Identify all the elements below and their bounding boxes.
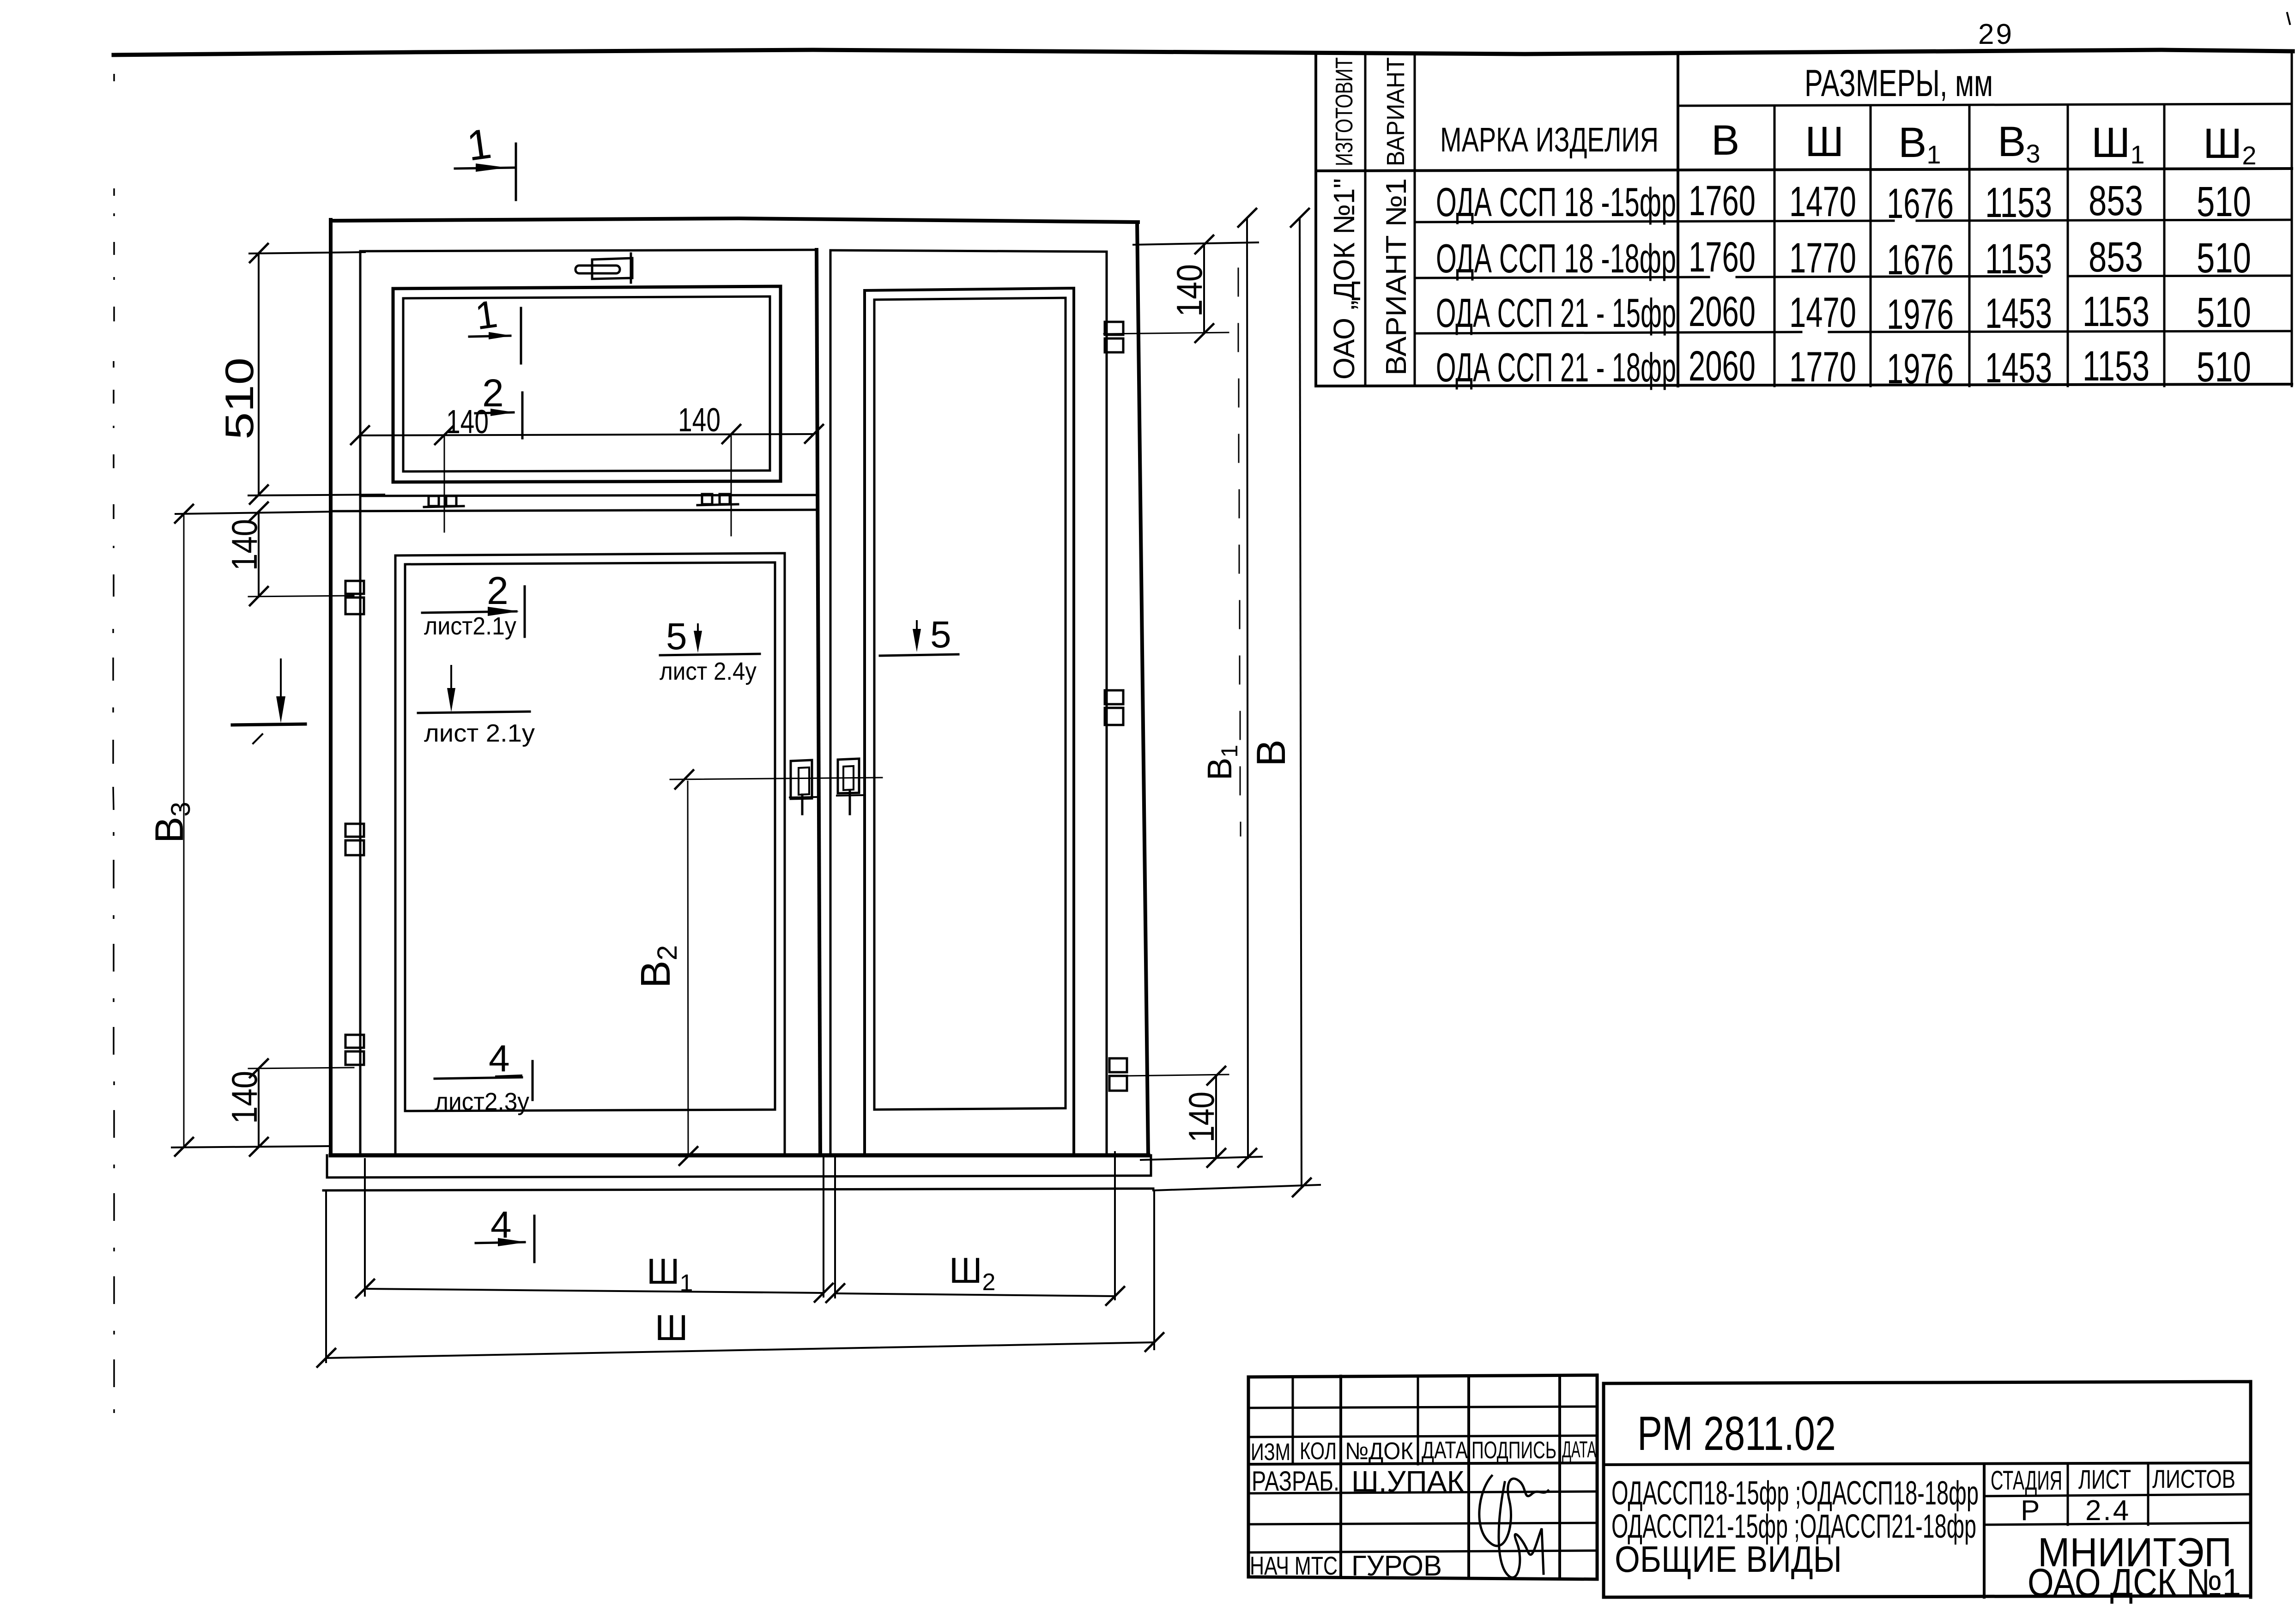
svg-text:лист 2.1у: лист 2.1у bbox=[424, 719, 535, 747]
svg-text:853: 853 bbox=[2089, 177, 2143, 224]
svg-text:1470: 1470 bbox=[1789, 289, 1856, 336]
svg-text:1153: 1153 bbox=[1985, 235, 2052, 283]
svg-text:1760: 1760 bbox=[1689, 177, 1756, 224]
svg-text:510: 510 bbox=[2197, 235, 2251, 282]
svg-text:510: 510 bbox=[2197, 178, 2251, 225]
svg-text:2: 2 bbox=[487, 569, 509, 612]
svg-text:1676: 1676 bbox=[1887, 180, 1954, 227]
svg-text:ДАТА: ДАТА bbox=[1562, 1437, 1596, 1462]
svg-text:1770: 1770 bbox=[1789, 344, 1856, 391]
svg-text:ОДА ССП 18 -15фр: ОДА ССП 18 -15фр bbox=[1436, 179, 1676, 225]
svg-text:ГУРОВ: ГУРОВ bbox=[1351, 1550, 1442, 1582]
svg-text:КОЛ: КОЛ bbox=[1300, 1438, 1337, 1465]
svg-text:ИЗГОТОВИТ: ИЗГОТОВИТ bbox=[1331, 57, 1358, 166]
svg-text:МАРКА ИЗДЕЛИЯ: МАРКА ИЗДЕЛИЯ bbox=[1440, 121, 1659, 159]
svg-text:ПОДПИСЬ: ПОДПИСЬ bbox=[1471, 1437, 1556, 1464]
svg-text:ОДА ССП 21 - 18фр: ОДА ССП 21 - 18фр bbox=[1436, 344, 1676, 390]
svg-text:5: 5 bbox=[930, 614, 951, 656]
svg-text:1153: 1153 bbox=[2083, 343, 2150, 390]
svg-text:ОДА ССП 21 - 15фр: ОДА ССП 21 - 15фр bbox=[1436, 290, 1676, 336]
svg-text:В: В bbox=[1711, 117, 1739, 164]
svg-text:510: 510 bbox=[2197, 289, 2251, 336]
svg-text:ОАО ДСК №1: ОАО ДСК №1 bbox=[2028, 1561, 2241, 1604]
svg-text:РАЗМЕРЫ, мм: РАЗМЕРЫ, мм bbox=[1805, 62, 1993, 104]
svg-text:853: 853 bbox=[2089, 234, 2143, 281]
svg-text:140: 140 bbox=[1181, 1092, 1222, 1142]
svg-text:2.4: 2.4 bbox=[2085, 1495, 2131, 1527]
svg-text:ОДАССП18-15фр ;ОДАССП18-18фр: ОДАССП18-15фр ;ОДАССП18-18фр bbox=[1611, 1475, 1979, 1512]
svg-text:лист 2.4у: лист 2.4у bbox=[660, 658, 757, 685]
svg-text:4: 4 bbox=[489, 1038, 510, 1080]
svg-text:1470: 1470 bbox=[1789, 178, 1856, 225]
svg-text:ИЗМ: ИЗМ bbox=[1251, 1439, 1290, 1466]
svg-text:лист2.1у: лист2.1у bbox=[424, 612, 516, 640]
svg-text:140: 140 bbox=[1169, 264, 1210, 317]
svg-text:1976: 1976 bbox=[1887, 291, 1954, 338]
svg-text:140: 140 bbox=[224, 519, 265, 571]
svg-text:ЛИСТОВ: ЛИСТОВ bbox=[2152, 1464, 2235, 1493]
svg-text:ДАТА: ДАТА bbox=[1422, 1437, 1468, 1464]
svg-text:Ш.УПАК: Ш.УПАК bbox=[1351, 1465, 1464, 1498]
svg-text:ОДА ССП 18 -18фр: ОДА ССП 18 -18фр bbox=[1436, 235, 1676, 281]
svg-text:140: 140 bbox=[678, 402, 721, 439]
svg-text:1760: 1760 bbox=[1689, 234, 1756, 281]
svg-text:лист2.3у: лист2.3у bbox=[435, 1088, 529, 1116]
svg-text:1676: 1676 bbox=[1887, 236, 1954, 284]
svg-text:1976: 1976 bbox=[1887, 345, 1954, 392]
svg-text:Ш: Ш bbox=[655, 1307, 688, 1348]
svg-text:1453: 1453 bbox=[1985, 290, 2052, 337]
svg-text:В: В bbox=[1248, 739, 1294, 767]
svg-text:2: 2 bbox=[482, 371, 504, 415]
svg-text:5: 5 bbox=[666, 616, 687, 658]
svg-text:ЛИСТ: ЛИСТ bbox=[2078, 1465, 2131, 1495]
svg-text:140: 140 bbox=[224, 1071, 265, 1124]
svg-text:1153: 1153 bbox=[1985, 179, 2052, 226]
svg-text:1770: 1770 bbox=[1789, 235, 1856, 282]
svg-text:510: 510 bbox=[218, 357, 262, 440]
svg-text:№ДОК: №ДОК bbox=[1345, 1438, 1413, 1465]
svg-text:ОБЩИЕ ВИДЫ: ОБЩИЕ ВИДЫ bbox=[1615, 1539, 1842, 1580]
svg-text:Р: Р bbox=[2021, 1495, 2040, 1527]
svg-text:ВАРИАНТ №1: ВАРИАНТ №1 bbox=[1381, 178, 1412, 375]
svg-text:РАЗРАБ.: РАЗРАБ. bbox=[1252, 1466, 1339, 1497]
svg-text:РМ 2811.02: РМ 2811.02 bbox=[1637, 1407, 1836, 1461]
svg-text:510: 510 bbox=[2197, 344, 2251, 391]
svg-text:1453: 1453 bbox=[1985, 344, 2052, 392]
svg-text:Ш: Ш bbox=[1805, 118, 1844, 165]
svg-text:ОАО „ДОК №1": ОАО „ДОК №1" bbox=[1327, 178, 1361, 380]
svg-text:1153: 1153 bbox=[2083, 288, 2150, 335]
svg-text:2060: 2060 bbox=[1689, 288, 1756, 335]
svg-text:29: 29 bbox=[1978, 18, 2014, 50]
svg-text:2060: 2060 bbox=[1689, 343, 1756, 390]
svg-text:СТАДИЯ: СТАДИЯ bbox=[1991, 1466, 2062, 1496]
svg-text:НАЧ МТС: НАЧ МТС bbox=[1250, 1551, 1338, 1580]
svg-text:ВАРИАНТ: ВАРИАНТ bbox=[1382, 57, 1410, 166]
